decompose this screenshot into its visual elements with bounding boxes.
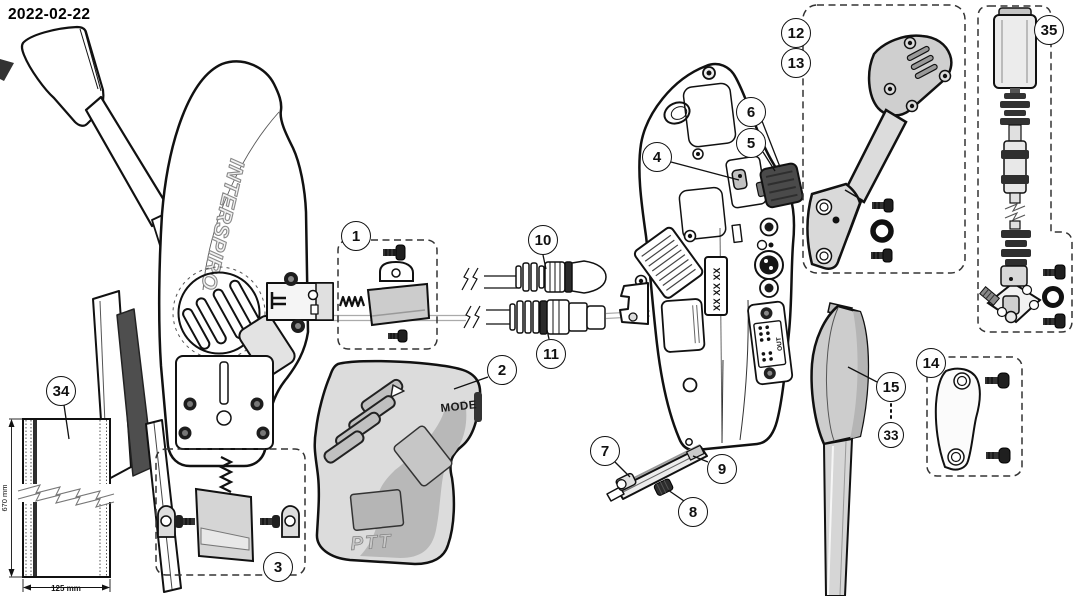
screw <box>1043 314 1065 328</box>
screw <box>1043 265 1065 279</box>
callout-7: 7 <box>590 436 620 466</box>
callout-13: 13 <box>781 48 811 78</box>
callout-1-number: 1 <box>352 228 360 245</box>
edge-clip-fragment <box>0 59 14 81</box>
callout-35: 35 <box>1034 15 1064 45</box>
exploded-parts-diagram: INTERSPIRO <box>0 0 1076 596</box>
callout-4-number: 4 <box>653 149 661 166</box>
callout-33: 33 <box>878 422 904 448</box>
revision-date: 2022-02-22 <box>8 6 90 24</box>
rubber-cover: MODE PTT <box>315 361 482 564</box>
parts-group-14 <box>927 357 1022 476</box>
callout-33-number: 33 <box>883 428 898 443</box>
diagram-artwork: INTERSPIRO <box>0 0 1076 596</box>
screw <box>388 330 407 342</box>
callout-34-number: 34 <box>53 383 70 400</box>
cable-assembly <box>980 8 1040 323</box>
callout-11-number: 11 <box>543 346 559 363</box>
callout-9-number: 9 <box>718 461 726 478</box>
callout-3-number: 3 <box>274 559 282 576</box>
strap-length-label: 670 mm <box>0 484 9 511</box>
callout-35-number: 35 <box>1041 22 1058 39</box>
spring <box>340 297 364 306</box>
ptt-lever <box>196 489 253 561</box>
callout-4: 4 <box>642 142 672 172</box>
battery-plate <box>176 356 273 449</box>
callout-15: 15 <box>876 372 906 402</box>
parts-group-12-13 <box>803 5 965 273</box>
info-label-white <box>661 299 704 353</box>
callout-13-number: 13 <box>788 55 805 72</box>
o-ring <box>1045 289 1062 306</box>
callout-14: 14 <box>916 348 946 378</box>
o-ring <box>873 222 891 240</box>
callout-7-number: 7 <box>601 443 609 460</box>
strap: 670 mm 125 mm <box>0 419 114 593</box>
callout-5: 5 <box>736 128 766 158</box>
callout-5-number: 5 <box>747 135 755 152</box>
callout-9: 9 <box>707 454 737 484</box>
callout-11: 11 <box>536 339 566 369</box>
callout-14-number: 14 <box>923 355 940 372</box>
callout-2: 2 <box>487 355 517 385</box>
callout-34: 34 <box>46 376 76 406</box>
lever-shaft <box>86 97 170 226</box>
serial-label-text: XX XX XX <box>712 267 723 311</box>
right-control-unit: XX XX XX <box>607 64 804 501</box>
cable-connector-10 <box>462 261 606 293</box>
bracket-lever-shaft <box>845 110 906 202</box>
callout-12: 12 <box>781 18 811 48</box>
callout-3: 3 <box>263 552 293 582</box>
callout-15-number: 15 <box>883 379 900 396</box>
screw <box>985 373 1009 388</box>
mount-right <box>260 506 299 537</box>
callout-10: 10 <box>528 225 558 255</box>
callout-1: 1 <box>341 221 371 251</box>
cover-patch-bottom <box>350 489 403 530</box>
callout-12-number: 12 <box>788 25 805 42</box>
screw <box>872 199 893 212</box>
callout-10-number: 10 <box>535 232 552 249</box>
parts-group-35 <box>978 6 1072 332</box>
ptt-label: PTT <box>350 531 393 555</box>
mount-left <box>158 506 195 537</box>
parts-group-1 <box>338 240 437 349</box>
callout-8-number: 8 <box>689 504 697 521</box>
screw <box>986 448 1010 463</box>
callout-6: 6 <box>736 97 766 127</box>
cable-connector-11 <box>464 300 605 334</box>
screw <box>871 249 892 262</box>
screw <box>383 245 405 260</box>
mode-button <box>368 284 429 325</box>
callout-6-number: 6 <box>747 104 755 121</box>
cable-strain-relief <box>812 303 868 596</box>
strap-width-label: 125 mm <box>51 584 81 593</box>
callout-8: 8 <box>678 497 708 527</box>
callout-2-number: 2 <box>498 362 506 379</box>
